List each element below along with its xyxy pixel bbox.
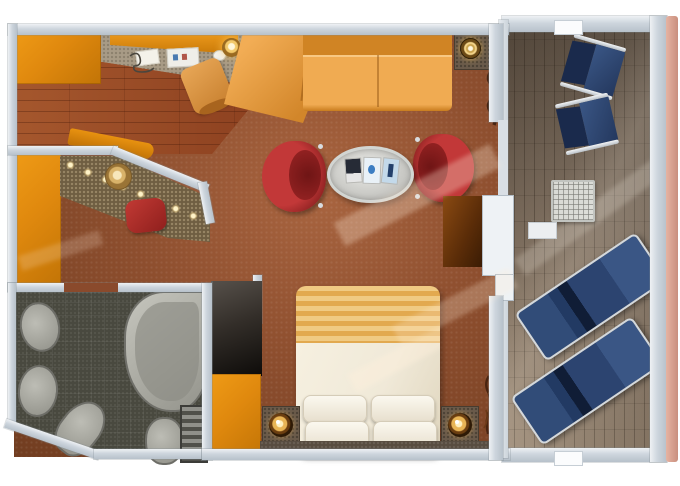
magazine xyxy=(344,157,363,183)
pillow xyxy=(303,395,367,423)
right-wall-lower xyxy=(489,296,503,460)
deck-chair-2 xyxy=(553,94,620,154)
phone-button xyxy=(173,54,178,60)
vanity-stool xyxy=(124,197,167,234)
bathroom-right-wall xyxy=(202,283,212,460)
vanity-wall xyxy=(8,146,118,155)
bedroom-cabinet xyxy=(210,374,261,458)
right-wall-upper xyxy=(489,24,503,122)
phone-button xyxy=(182,54,187,60)
balcony-door-panel xyxy=(482,195,514,276)
bathroom-left-wall xyxy=(8,283,16,426)
balcony-side-table xyxy=(551,180,595,222)
media-cabinet xyxy=(443,196,482,267)
balcony-railing xyxy=(666,16,678,462)
bathroom-doorway xyxy=(64,283,118,292)
floor-plan xyxy=(0,0,680,486)
armchair-left xyxy=(262,141,326,212)
bedside-lamp xyxy=(269,413,293,437)
bed-foot-runner xyxy=(296,286,440,343)
balcony-door-threshold xyxy=(498,120,508,198)
tall-wardrobe xyxy=(211,281,262,376)
nightstand-right xyxy=(441,406,479,446)
vanity-sink xyxy=(105,163,132,190)
desk-cable xyxy=(128,52,156,76)
armchair-seat xyxy=(289,150,321,200)
balcony-post-top xyxy=(554,20,583,35)
balcony-top-wall xyxy=(502,16,666,32)
bathroom-bottom-wall xyxy=(94,449,213,459)
magazine xyxy=(381,157,401,185)
wardrobe-top-left xyxy=(13,31,101,84)
corner-lamp xyxy=(460,38,481,59)
coffee-table xyxy=(327,146,414,203)
bathtub-basin xyxy=(135,302,199,401)
balcony-step xyxy=(528,222,557,239)
balcony-bottom-wall xyxy=(502,448,666,462)
pillow xyxy=(371,395,435,423)
vanity-cabinet xyxy=(13,154,61,286)
magazine-cover-art xyxy=(387,164,393,177)
magazine-cover-art xyxy=(368,165,375,174)
sofa-main-section xyxy=(303,31,452,111)
armchair-stud xyxy=(415,137,420,142)
armchair-stud xyxy=(415,194,420,199)
left-wall xyxy=(8,24,17,291)
sofa-cushion-divider xyxy=(377,55,379,107)
bedside-lamp xyxy=(448,413,472,437)
armchair-right xyxy=(413,134,474,202)
bottom-wall xyxy=(202,449,510,460)
balcony-post-bottom xyxy=(554,451,583,466)
top-wall xyxy=(8,24,509,35)
lamp-highlight xyxy=(276,420,280,424)
magazine xyxy=(363,157,382,185)
armchair-seat xyxy=(418,143,449,191)
lamp-highlight xyxy=(455,420,459,424)
balcony-divider-wall xyxy=(650,16,667,462)
nightstand-left xyxy=(262,406,300,446)
bathtub xyxy=(124,291,210,412)
